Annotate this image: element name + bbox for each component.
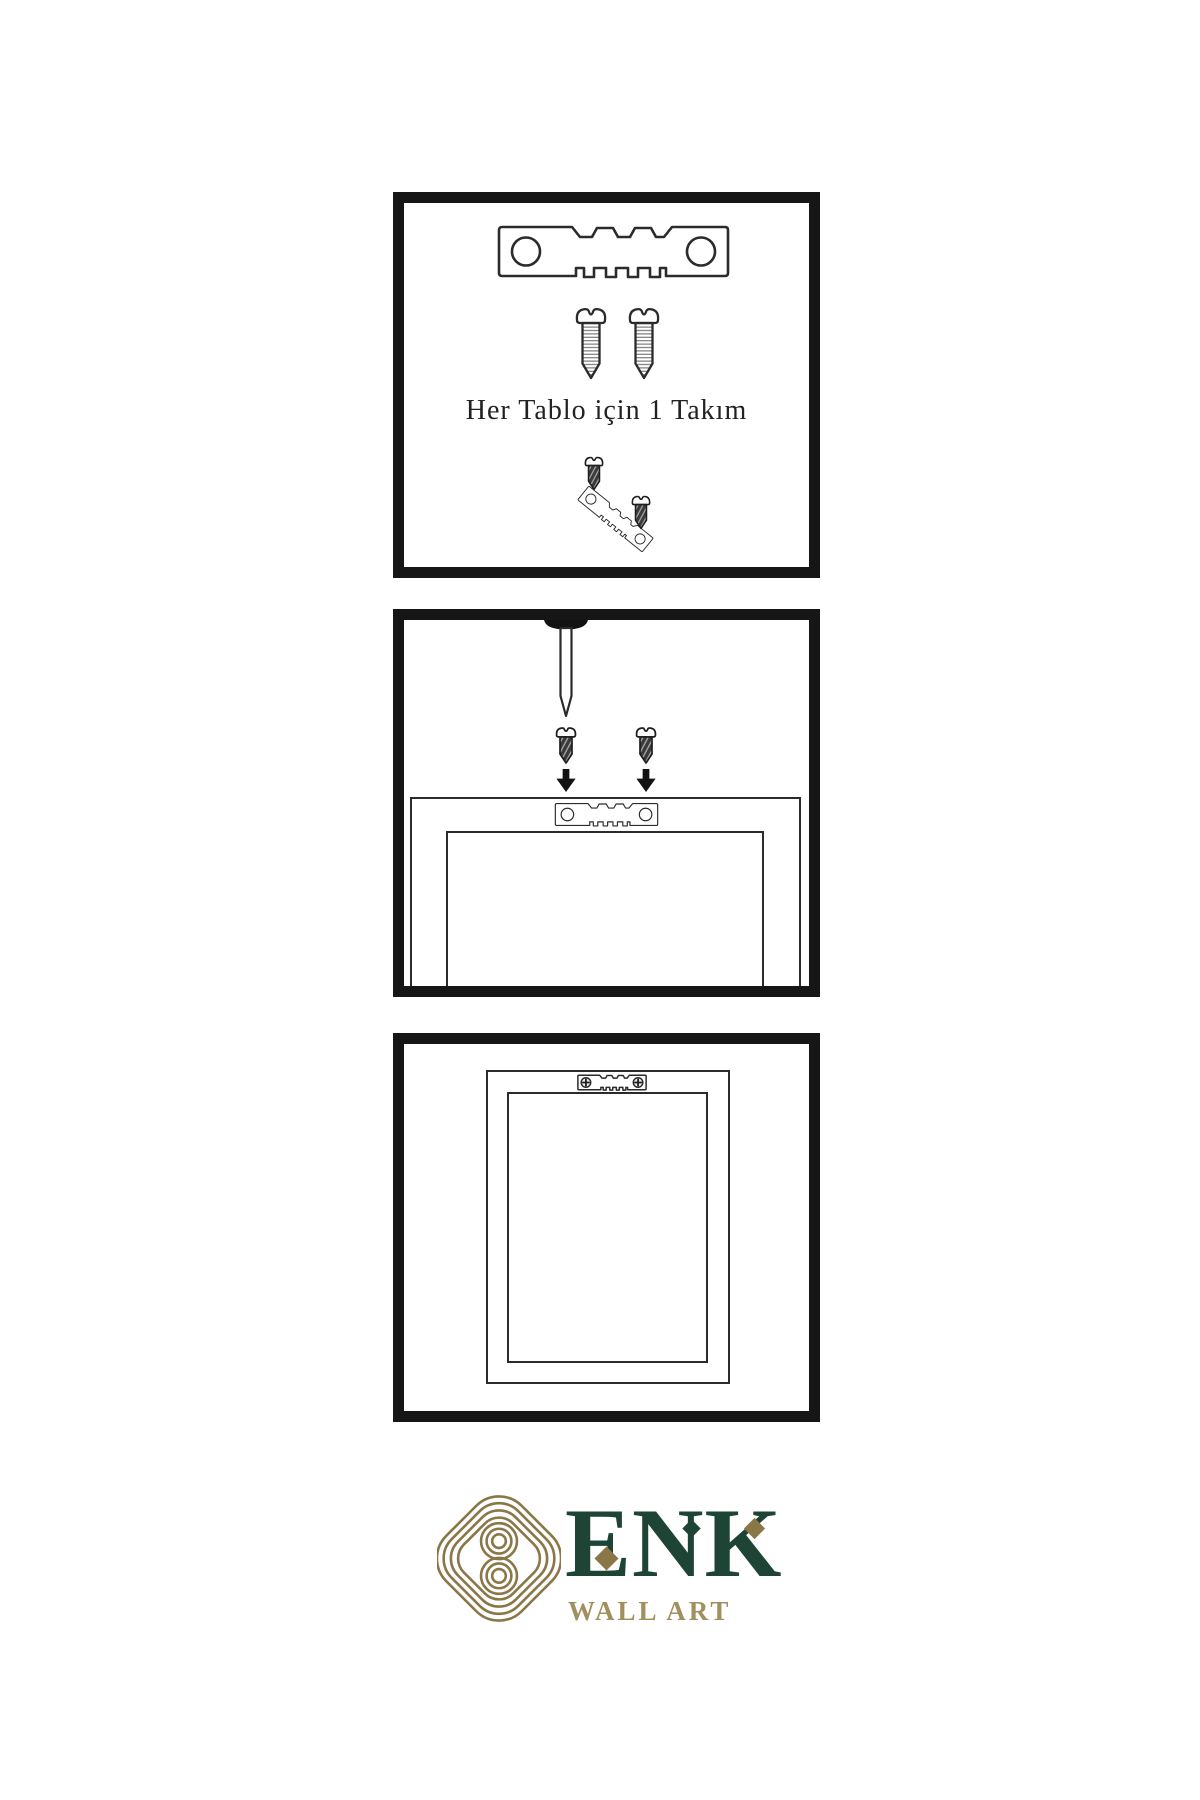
screw-icon bbox=[573, 305, 609, 381]
step3-finished-frame-panel bbox=[393, 1033, 820, 1422]
knot-logo-icon bbox=[437, 1494, 561, 1623]
small-dark-screw-icon bbox=[630, 494, 652, 530]
brand-logo: ENK WALL ART bbox=[437, 1492, 777, 1642]
down-arrow-icon bbox=[556, 769, 576, 792]
mounted-sawtooth-hanger-icon bbox=[577, 1074, 647, 1091]
down-arrow-icon bbox=[636, 769, 656, 792]
instruction-sheet: Her Tablo için 1 Takım ENK WALL ART bbox=[0, 0, 1200, 1800]
brand-subtitle: WALL ART bbox=[568, 1596, 731, 1627]
dark-screw-icon bbox=[554, 725, 578, 765]
brand-name: ENK bbox=[565, 1494, 783, 1593]
step1-hardware-kit-panel: Her Tablo için 1 Takım bbox=[393, 192, 820, 578]
frame-back-inner-outline bbox=[446, 831, 764, 997]
wall-nail-icon bbox=[543, 620, 589, 720]
dark-screw-icon bbox=[634, 725, 658, 765]
sawtooth-hanger-icon bbox=[554, 802, 659, 827]
sawtooth-hanger-icon bbox=[496, 224, 731, 279]
screw-icon bbox=[626, 305, 662, 381]
step2-installation-panel bbox=[393, 609, 820, 997]
frame-back-inner-outline bbox=[507, 1092, 708, 1363]
kit-caption: Her Tablo için 1 Takım bbox=[404, 395, 809, 427]
